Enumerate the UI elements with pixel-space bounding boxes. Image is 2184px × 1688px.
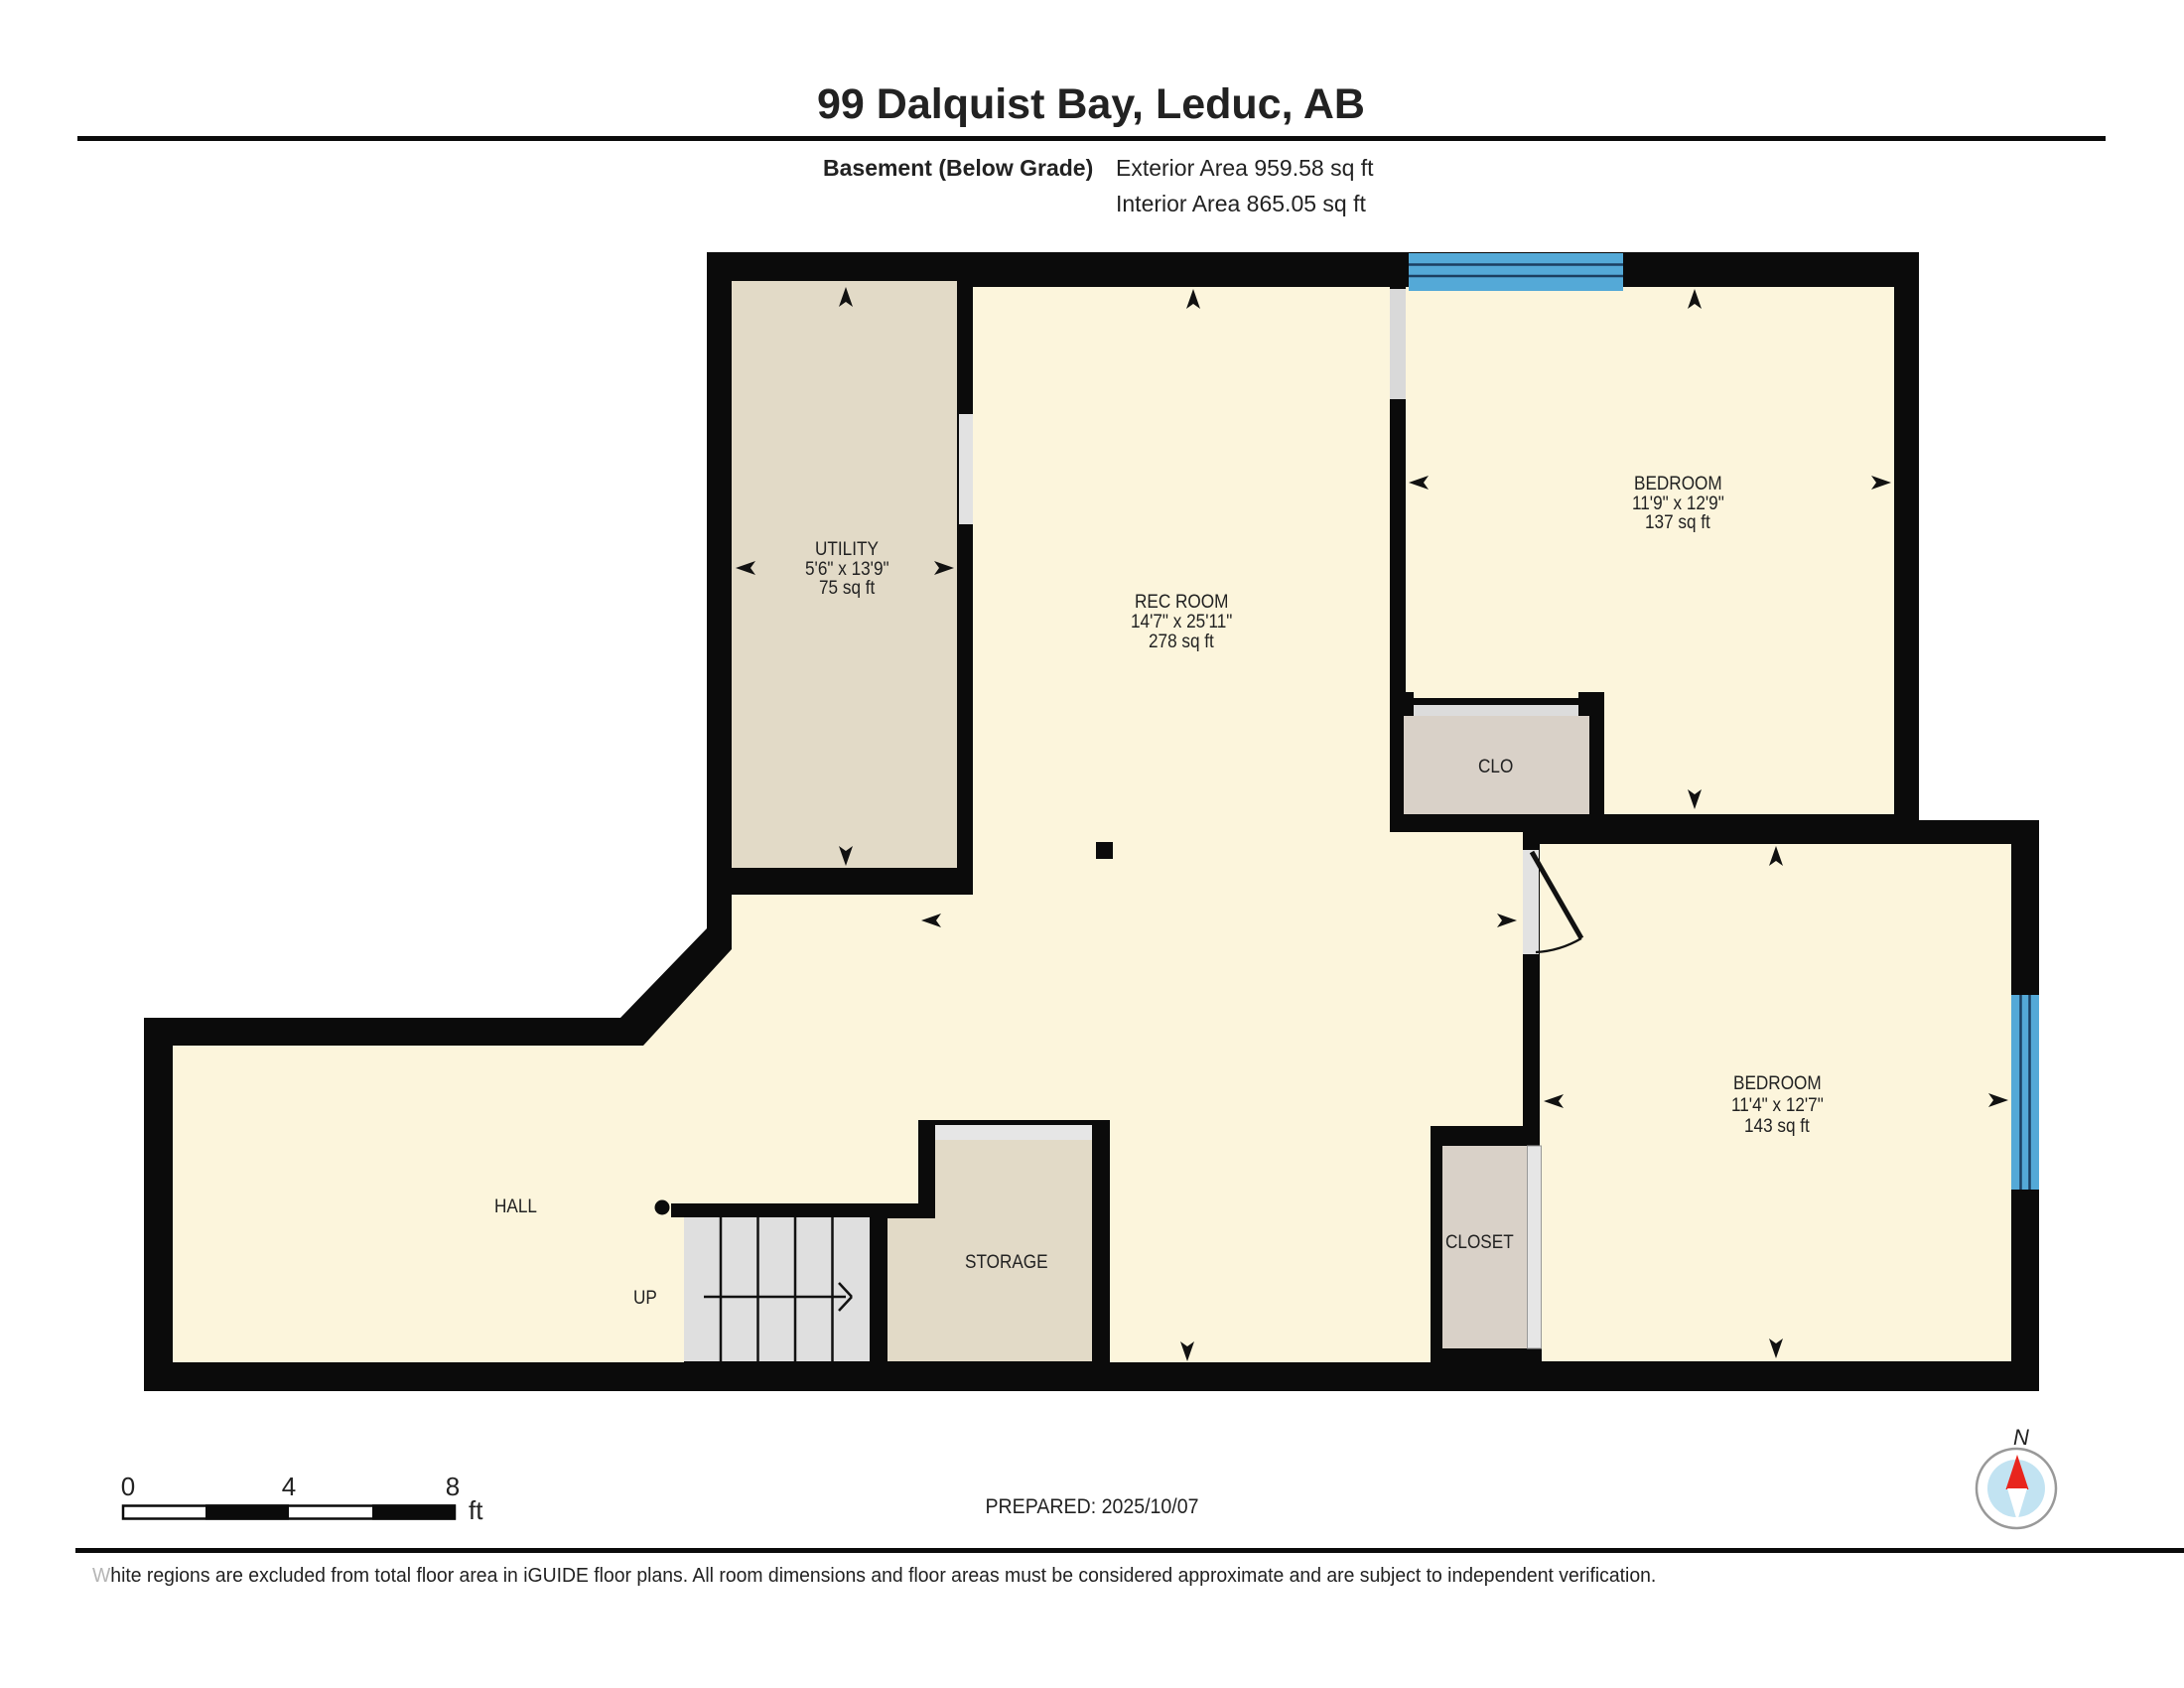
svg-text:137 sq ft: 137 sq ft — [1645, 511, 1710, 533]
svg-text:BEDROOM: BEDROOM — [1733, 1072, 1822, 1094]
svg-text:14'7" x 25'11": 14'7" x 25'11" — [1131, 611, 1232, 633]
svg-text:75 sq ft: 75 sq ft — [819, 577, 876, 599]
svg-text:REC ROOM: REC ROOM — [1135, 591, 1228, 613]
svg-text:0: 0 — [121, 1472, 135, 1501]
svg-text:BEDROOM: BEDROOM — [1634, 473, 1722, 494]
svg-text:Exterior Area 959.58 sq ft: Exterior Area 959.58 sq ft — [1116, 155, 1374, 181]
svg-text:hite regions are excluded from: hite regions are excluded from total flo… — [110, 1565, 1656, 1587]
svg-text:CLO: CLO — [1478, 756, 1513, 777]
svg-text:278 sq ft: 278 sq ft — [1149, 631, 1214, 652]
svg-text:W: W — [92, 1565, 110, 1587]
svg-text:4: 4 — [282, 1472, 296, 1501]
svg-text:HALL: HALL — [494, 1196, 537, 1217]
svg-text:Basement (Below Grade): Basement (Below Grade) — [823, 155, 1093, 181]
svg-text:STORAGE: STORAGE — [965, 1251, 1048, 1273]
svg-text:UTILITY: UTILITY — [815, 538, 879, 560]
svg-text:143 sq ft: 143 sq ft — [1744, 1115, 1810, 1137]
svg-text:8: 8 — [446, 1472, 460, 1501]
svg-text:ft: ft — [469, 1495, 483, 1525]
svg-text:UP: UP — [633, 1287, 657, 1309]
svg-text:Interior Area 865.05 sq ft: Interior Area 865.05 sq ft — [1116, 191, 1366, 216]
svg-text:11'4" x 12'7": 11'4" x 12'7" — [1731, 1094, 1824, 1116]
svg-text:99 Dalquist Bay, Leduc, AB: 99 Dalquist Bay, Leduc, AB — [817, 80, 1365, 128]
svg-text:CLOSET: CLOSET — [1445, 1231, 1514, 1253]
svg-text:N: N — [2013, 1425, 2029, 1450]
svg-text:PREPARED: 2025/10/07: PREPARED: 2025/10/07 — [986, 1495, 1199, 1518]
